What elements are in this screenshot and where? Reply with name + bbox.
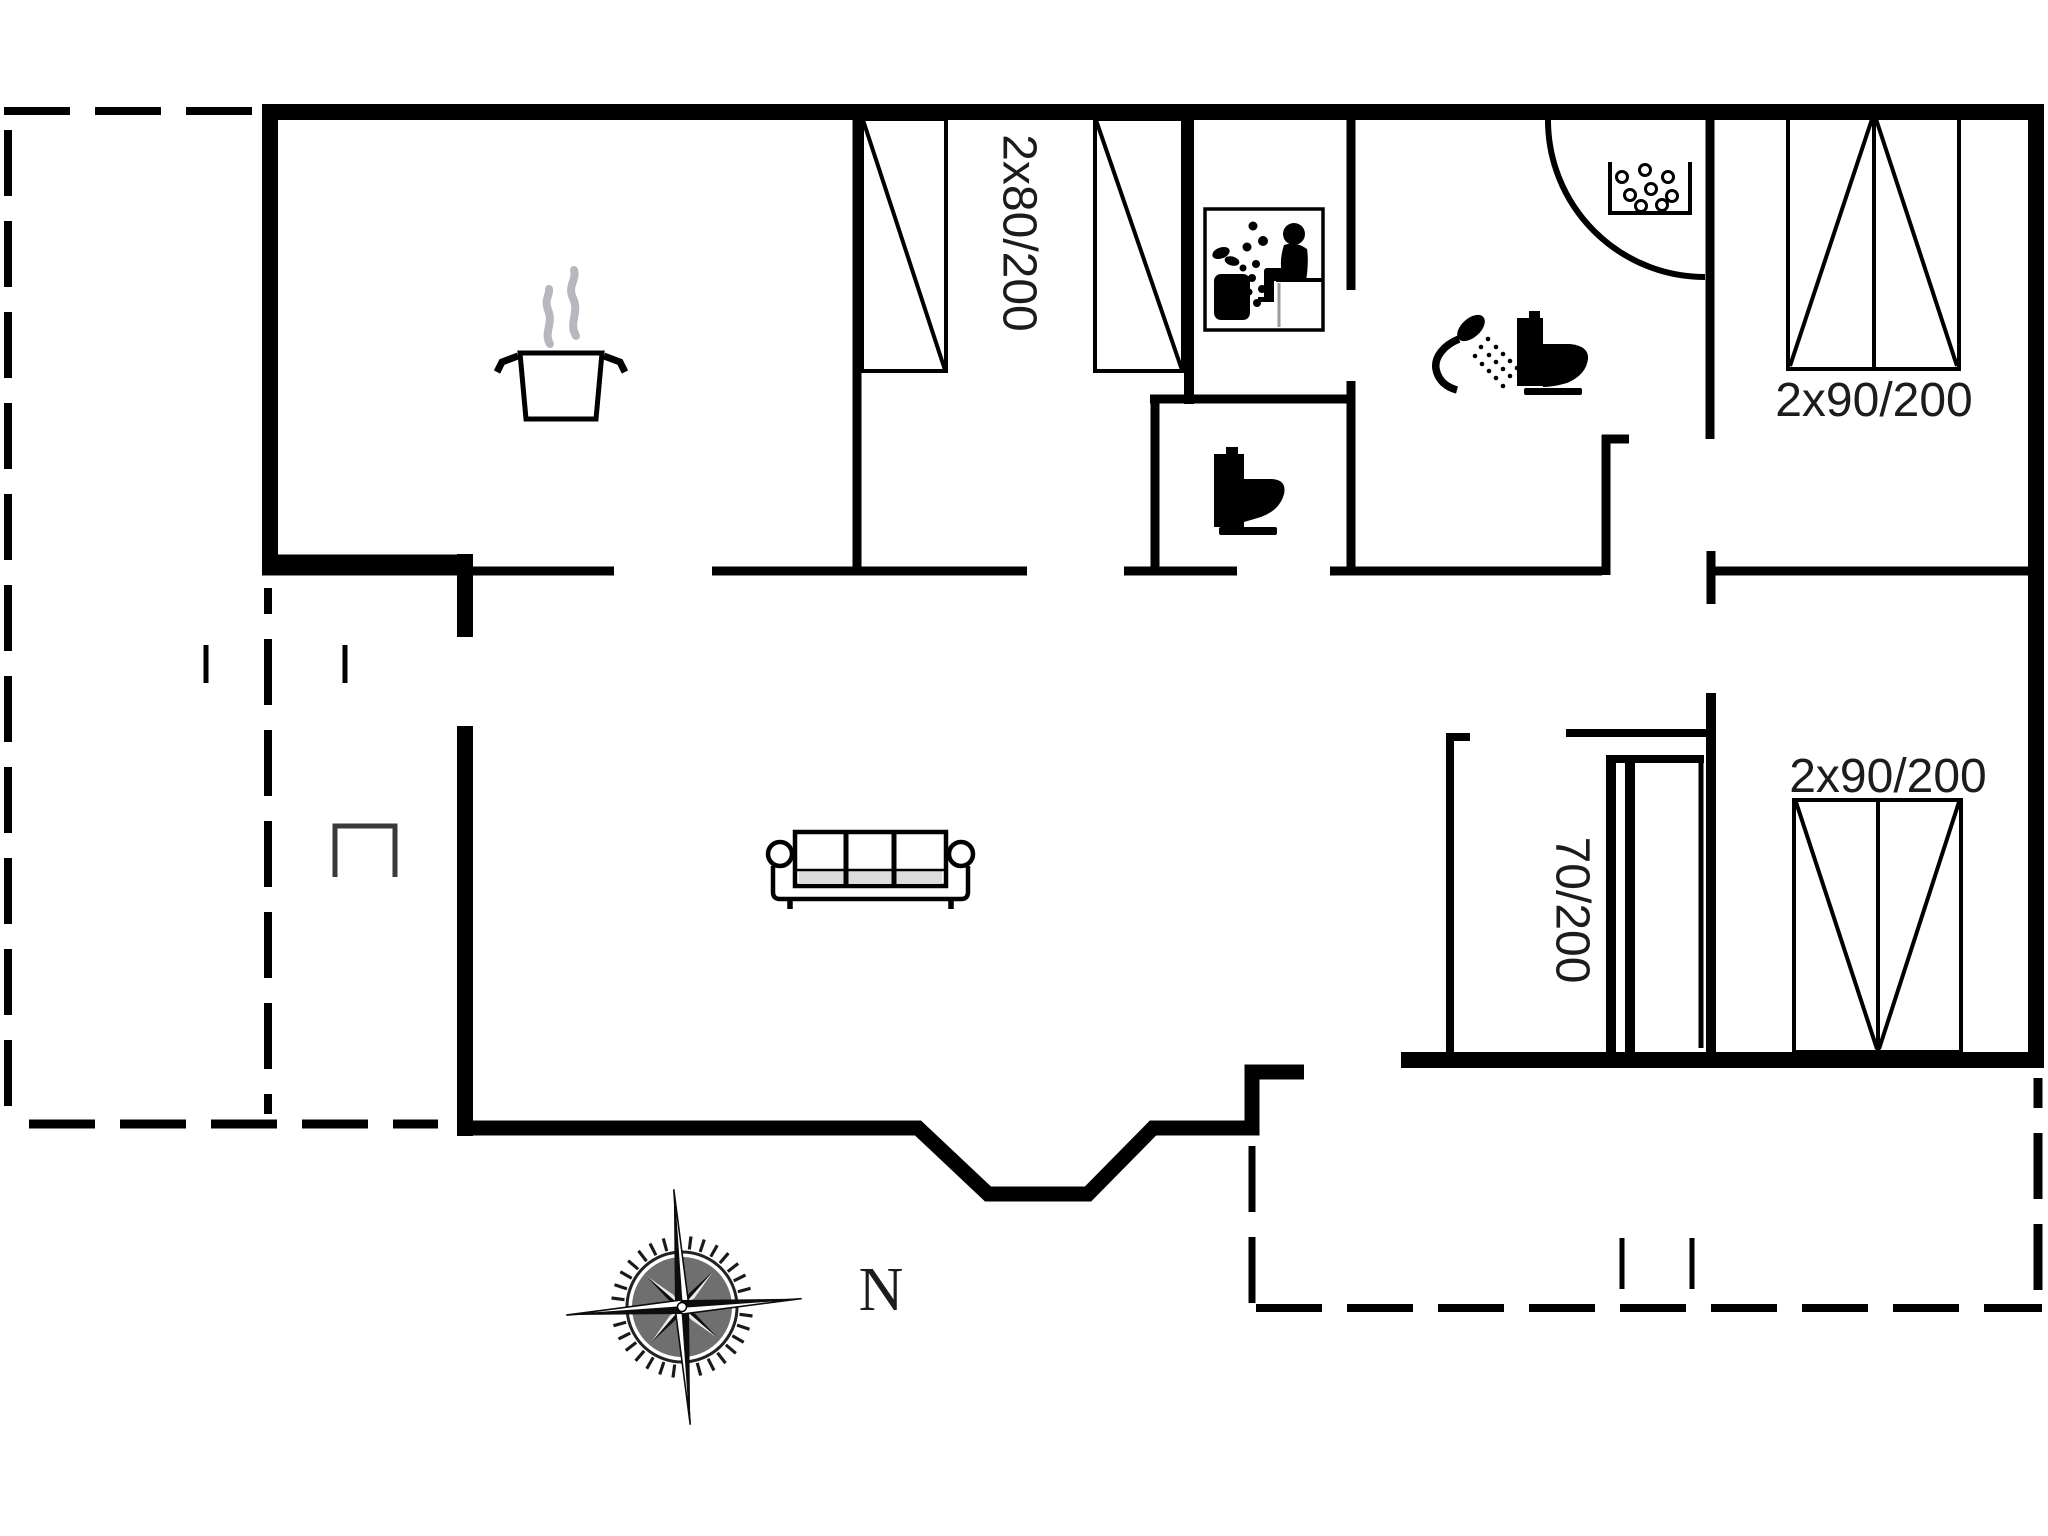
- svg-text:2x80/200: 2x80/200: [993, 134, 1046, 332]
- svg-text:70/200: 70/200: [1546, 837, 1599, 984]
- svg-text:2x90/200: 2x90/200: [1775, 374, 1973, 427]
- svg-text:2x90/200: 2x90/200: [1789, 750, 1987, 803]
- svg-text:N: N: [859, 1256, 904, 1324]
